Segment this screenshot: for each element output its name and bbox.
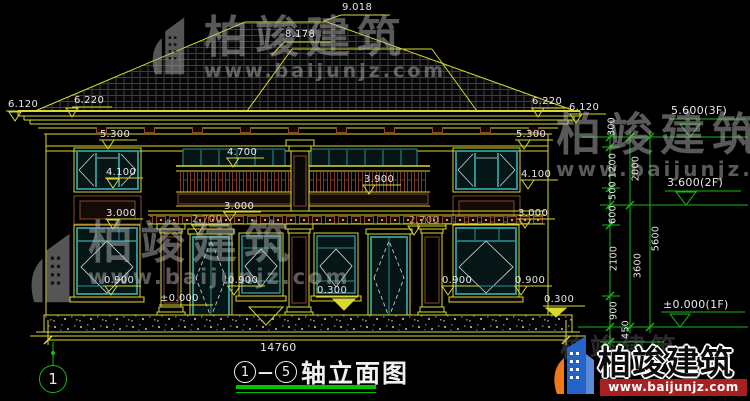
level-center-0900-right: 0.900 (442, 275, 472, 286)
level-right-5300: 5.300 (516, 129, 546, 140)
axis-bubble-label: 1 (48, 370, 58, 388)
title-separator: — (258, 363, 273, 381)
level-left-eave-outer: 6.120 (8, 99, 38, 110)
level-center-0900: 0.900 (228, 275, 258, 286)
window-2f-right (453, 148, 520, 192)
chain-seg-900: 900 (609, 289, 620, 333)
chain-seg-300: 300 (607, 105, 618, 149)
level-right-3000: 3.000 (518, 208, 548, 219)
level-right-4100: 4.100 (521, 169, 551, 180)
level-right-eave-outer: 6.120 (569, 102, 599, 113)
title-axis-end: 5 (282, 365, 290, 380)
floor-level-1f: ±0.000(1F) (663, 299, 729, 310)
watermark-brand: 柏竣建筑 (556, 112, 750, 157)
watermark-brand: 柏竣建筑 (204, 16, 446, 60)
watermark-top: 柏竣建筑 www.baijunjz.com (204, 16, 446, 82)
level-left-3000: 3.000 (106, 208, 136, 219)
level-left-eave: 6.220 (74, 95, 104, 106)
elevation-drawing-canvas: 柏竣建筑 www.baijunjz.com 柏竣建筑 www.baijunjz.… (0, 0, 750, 401)
level-center-2700-left: 2.700 (192, 214, 222, 225)
brand-url: www.baijunjz.com (600, 379, 747, 396)
level-right-eave: 6.220 (532, 96, 562, 107)
chain-sub-2000: 2000 (631, 147, 642, 191)
floor-level-3f: 5.600(3F) (671, 105, 727, 116)
level-center-4700: 4.700 (227, 147, 257, 158)
watermark-logo-icon (146, 14, 200, 76)
chain-sub-3600: 3600 (633, 244, 644, 288)
axis-grid-1 (51, 342, 55, 365)
brand-logo-icon (552, 334, 598, 398)
level-center-zero: ±0.000 (160, 293, 199, 304)
level-right-0900: 0.900 (515, 275, 545, 286)
window-1f-right (449, 225, 523, 302)
level-center-3000: 3.000 (224, 201, 254, 212)
level-center-2700-right: 2.700 (409, 215, 439, 226)
overall-width-dim: 14760 (260, 342, 297, 353)
title-axis-start-circle: 1 (234, 361, 256, 383)
plinth (30, 315, 586, 336)
watermark-right: 柏竣建筑 www.baijunjz.com (556, 112, 750, 181)
title-underline-thin (236, 392, 376, 393)
level-right-0300: 0.300 (544, 294, 574, 305)
level-left-5300: 5.300 (100, 129, 130, 140)
title-axis-start: 1 (241, 365, 249, 380)
level-center-3900: 3.900 (364, 174, 394, 185)
chain-seg-600: 600 (608, 193, 619, 237)
chain-seg-2100: 2100 (609, 237, 620, 281)
title-axis-end-circle: 5 (275, 361, 297, 383)
title-underline-thick (236, 385, 376, 389)
level-sub-ridge: 8.178 (285, 29, 315, 40)
watermark-url: www.baijunjz.com (204, 60, 446, 82)
chain-total-5600: 5600 (651, 217, 662, 261)
level-ridge: 9.018 (342, 2, 372, 13)
level-center-0300: 0.300 (317, 285, 347, 296)
door-1f-right (366, 229, 412, 322)
level-left-4100: 4.100 (106, 167, 136, 178)
level-left-0900: 0.900 (104, 275, 134, 286)
floor-level-2f: 3.600(2F) (667, 177, 723, 188)
axis-bubble-1: 1 (39, 365, 67, 393)
watermark-brand: 柏竣建筑 (88, 220, 351, 265)
brand-name: 柏竣建筑 (598, 336, 734, 384)
watermark-logo-icon (28, 228, 84, 306)
